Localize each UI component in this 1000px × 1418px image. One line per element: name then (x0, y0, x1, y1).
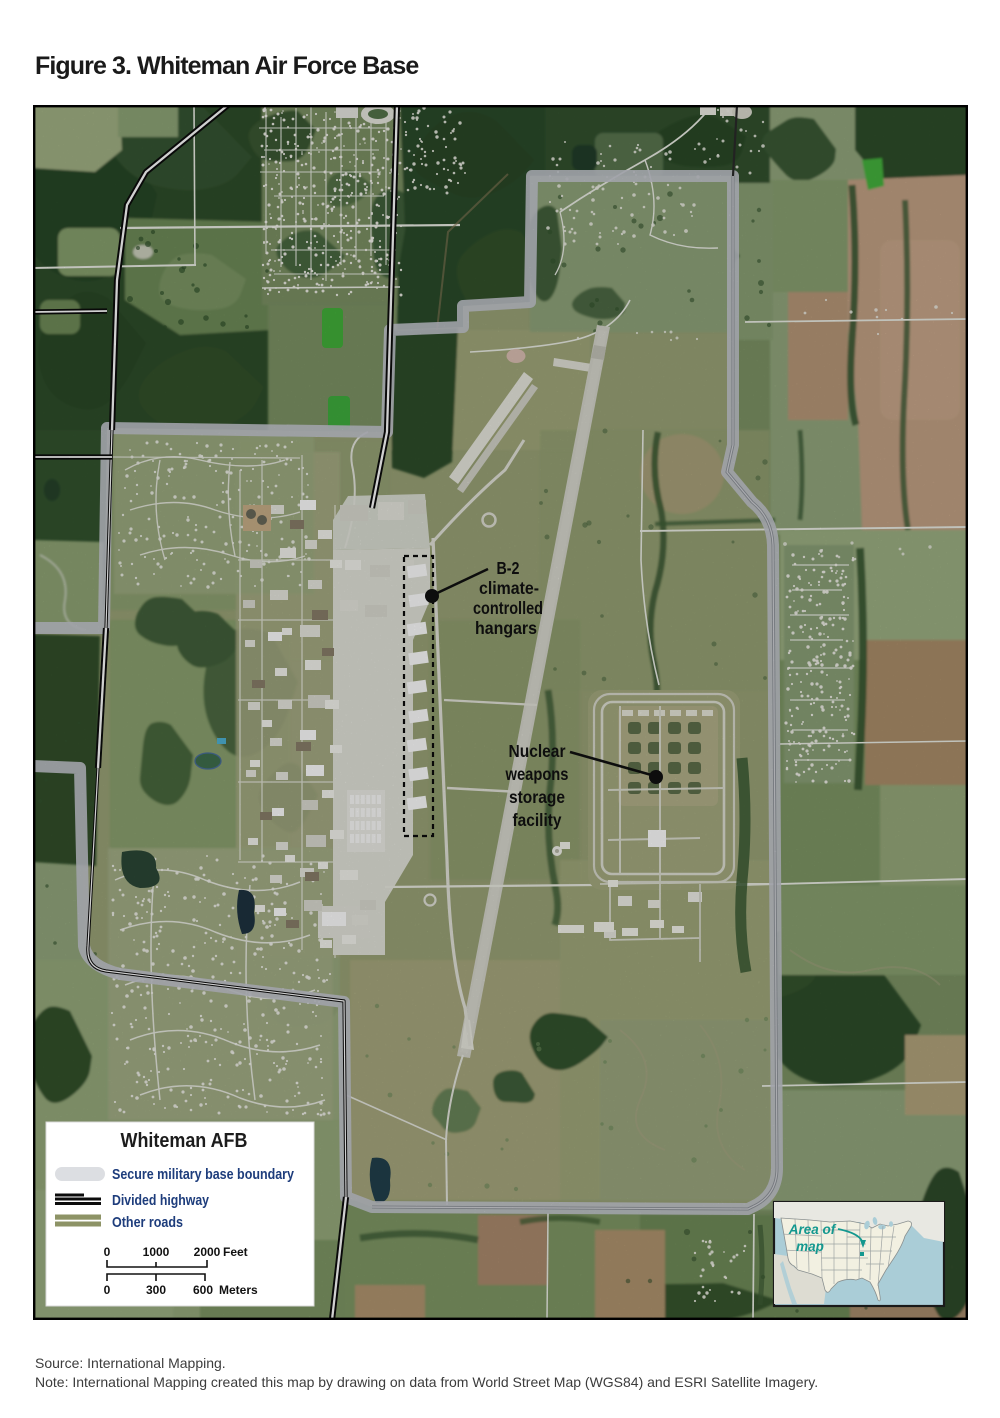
svg-text:Meters: Meters (219, 1283, 258, 1297)
svg-text:map: map (796, 1239, 824, 1254)
svg-text:2000: 2000 (194, 1245, 221, 1259)
svg-text:0: 0 (104, 1283, 111, 1297)
svg-text:Whiteman AFB: Whiteman AFB (121, 1130, 248, 1152)
svg-text:Divided highway: Divided highway (112, 1192, 210, 1209)
svg-text:Secure military base boundary: Secure military base boundary (112, 1166, 295, 1183)
svg-text:1000: 1000 (143, 1245, 170, 1259)
svg-text:Feet: Feet (223, 1245, 248, 1259)
svg-text:Area of: Area of (788, 1222, 837, 1237)
svg-text:300: 300 (146, 1283, 166, 1297)
svg-text:600: 600 (193, 1283, 213, 1297)
svg-text:Other roads: Other roads (112, 1214, 183, 1231)
svg-text:0: 0 (104, 1245, 111, 1259)
